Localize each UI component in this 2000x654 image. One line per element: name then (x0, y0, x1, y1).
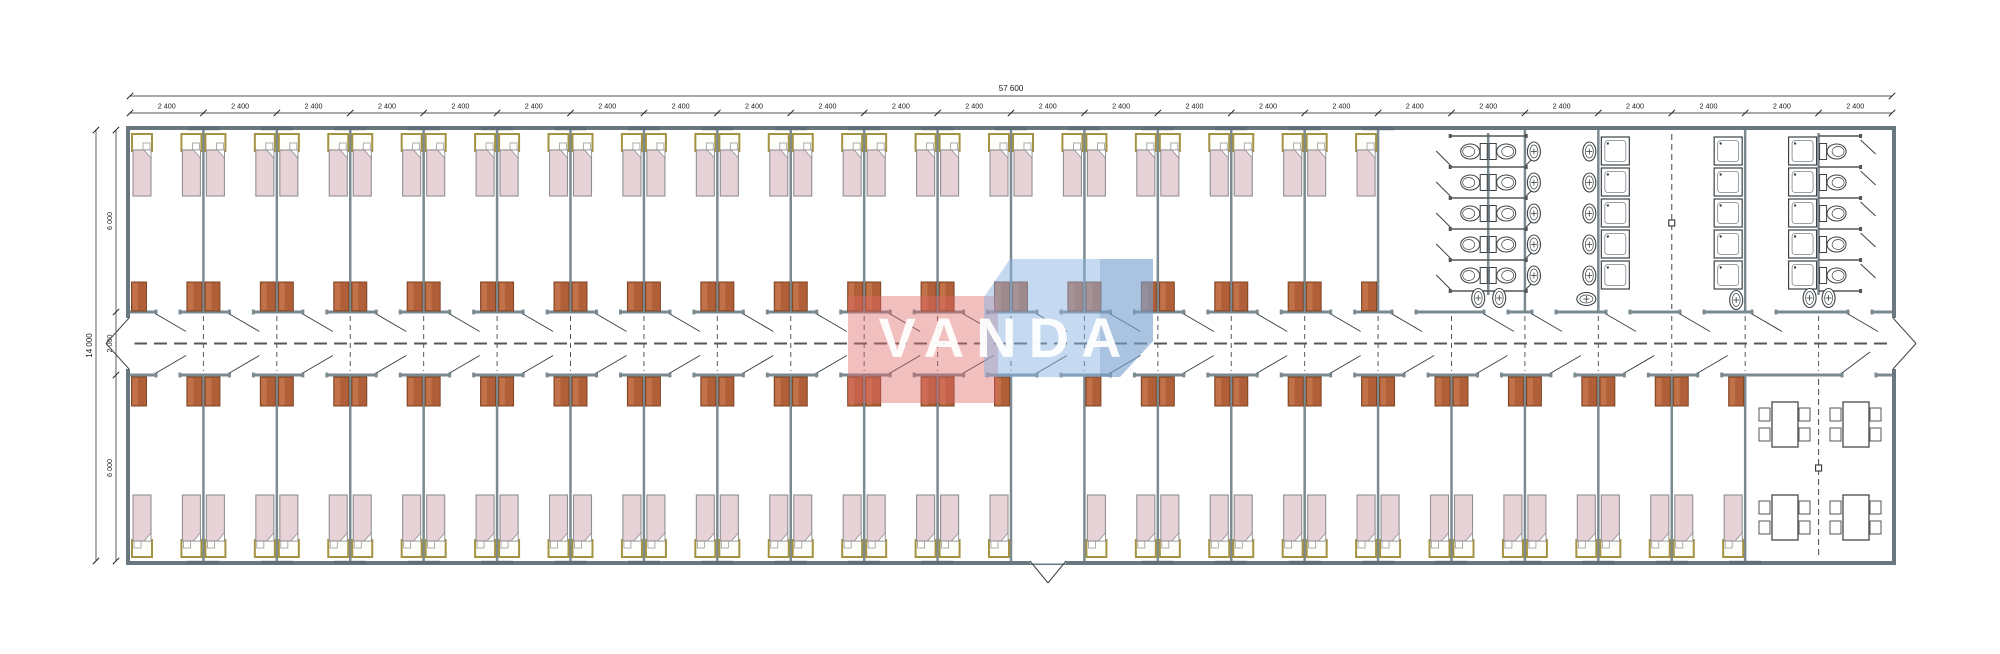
door-swing (815, 310, 847, 332)
bed (549, 134, 569, 196)
wardrobe (572, 282, 587, 311)
bed (1454, 495, 1474, 557)
door-swing (595, 310, 627, 332)
bed (328, 495, 348, 557)
wardrobe (1582, 377, 1597, 406)
svg-text:2 400: 2 400 (598, 102, 616, 111)
bed (1356, 495, 1376, 557)
washbasin (1730, 291, 1743, 310)
bed (622, 134, 642, 196)
chair (1830, 521, 1841, 534)
wardrobe (554, 282, 569, 311)
svg-text:2 400: 2 400 (451, 102, 469, 111)
wardrobe (554, 377, 569, 406)
svg-text:6 000: 6 000 (105, 212, 114, 230)
door-swing (1182, 356, 1214, 378)
washbasin (1583, 204, 1596, 223)
svg-text:2 400: 2 400 (525, 102, 543, 111)
svg-text:2 400: 2 400 (1846, 102, 1864, 111)
wardrobe (1453, 377, 1468, 406)
wardrobe (260, 377, 275, 406)
door-swing (228, 310, 259, 332)
toilet (1820, 237, 1847, 253)
door-swing (1182, 310, 1214, 332)
dining-table (1830, 402, 1881, 447)
wardrobe (187, 377, 202, 406)
bedroom (719, 134, 789, 332)
wardrobe (1508, 377, 1523, 406)
wardrobe (260, 282, 275, 311)
bed (1086, 134, 1106, 196)
bed (1503, 495, 1523, 557)
door-swing (1403, 356, 1435, 378)
bed (1576, 495, 1596, 557)
bedroom (132, 134, 202, 332)
chair (1799, 428, 1810, 441)
shower-tray (1789, 168, 1817, 196)
chair (1870, 501, 1881, 514)
bed (573, 134, 593, 196)
washbasin (1527, 235, 1540, 254)
door-swing (1476, 356, 1508, 378)
wardrobe (1233, 377, 1248, 406)
bed (1723, 495, 1743, 557)
dining-table (1759, 495, 1810, 540)
bed (866, 134, 886, 196)
wardrobe (132, 282, 147, 311)
wardrobe (499, 377, 514, 406)
bed (1380, 495, 1400, 557)
shower-tray (1714, 168, 1742, 196)
shower-tray (1601, 261, 1629, 289)
wardrobe (1600, 377, 1615, 406)
bed (1283, 134, 1303, 196)
toilet (1489, 175, 1516, 191)
shower-tray (1789, 137, 1817, 165)
wardrobe (1435, 377, 1450, 406)
door-swing (668, 310, 700, 332)
bedroom (425, 356, 495, 558)
bed (793, 495, 813, 557)
washbasin (1583, 235, 1596, 254)
bedroom (425, 134, 495, 332)
dining-room (1759, 352, 1881, 540)
chair (1759, 521, 1770, 534)
bedroom (719, 356, 789, 558)
bed (402, 495, 422, 557)
washbasin (1493, 289, 1506, 308)
bed (695, 134, 715, 196)
bed (719, 134, 739, 196)
bed (769, 495, 789, 557)
wardrobe (645, 377, 660, 406)
wardrobe (1159, 377, 1174, 406)
shower-tray (1714, 230, 1742, 258)
door-swing (1329, 310, 1361, 332)
door-swing (1696, 356, 1728, 378)
toilet (1461, 206, 1488, 222)
washroom (1527, 142, 1595, 306)
bedroom (132, 356, 202, 558)
bed (499, 134, 519, 196)
bed (769, 134, 789, 196)
sanitary-area (1391, 134, 1879, 332)
washbasin (1583, 266, 1596, 285)
bed (426, 495, 446, 557)
toilet (1820, 175, 1847, 191)
bed (916, 134, 936, 196)
chair (1870, 428, 1881, 441)
washbasin (1803, 289, 1816, 308)
toilet (1461, 175, 1488, 191)
bedroom (1086, 356, 1156, 558)
door-swing (522, 310, 554, 332)
bed (1527, 495, 1547, 557)
bed (352, 134, 372, 196)
chair (1799, 501, 1810, 514)
bedroom (1233, 134, 1303, 332)
svg-text:2 400: 2 400 (1553, 102, 1571, 111)
shower-tray (1601, 168, 1629, 196)
bed (255, 134, 275, 196)
bed (1307, 495, 1327, 557)
wardrobe (205, 377, 220, 406)
bed (1650, 495, 1670, 557)
wardrobe (407, 282, 422, 311)
wardrobe (1233, 282, 1248, 311)
wardrobe (425, 282, 440, 311)
bed (842, 495, 862, 557)
bed (279, 495, 299, 557)
washbasin (1527, 266, 1540, 285)
bed (719, 495, 739, 557)
bedroom (1526, 356, 1596, 558)
svg-text:2 400: 2 400 (1406, 102, 1424, 111)
door-swing (1329, 356, 1361, 378)
wardrobe (1380, 377, 1395, 406)
door-swing (301, 356, 333, 378)
bed (132, 495, 152, 557)
svg-text:14 000: 14 000 (85, 333, 94, 358)
washbasin (1822, 289, 1835, 308)
svg-text:2 400: 2 400 (231, 102, 249, 111)
bed (1160, 134, 1180, 196)
bed (499, 495, 519, 557)
bed (940, 134, 960, 196)
dimension-top: 57 6002 4002 4002 4002 4002 4002 4002 40… (127, 84, 1895, 116)
svg-text:2 400: 2 400 (1773, 102, 1791, 111)
wardrobe (627, 377, 642, 406)
bed (132, 134, 152, 196)
bed (940, 495, 960, 557)
toilet (1820, 268, 1847, 284)
bed (1160, 495, 1180, 557)
wardrobe (334, 282, 349, 311)
shower-wc-room (1789, 134, 1876, 308)
toilet (1461, 144, 1488, 160)
door-swing (375, 356, 407, 378)
bed (1307, 134, 1327, 196)
wardrobe (701, 282, 716, 311)
shower-tray (1601, 137, 1629, 165)
chair (1830, 408, 1841, 421)
bedroom (352, 134, 422, 332)
bed (989, 134, 1009, 196)
bed (842, 134, 862, 196)
bedroom (572, 134, 642, 332)
bed (646, 134, 666, 196)
bedroom (352, 356, 422, 558)
toilet (1489, 268, 1516, 284)
door-swing (375, 310, 407, 332)
shower-tray (1714, 261, 1742, 289)
bed (1086, 495, 1106, 557)
shower-tray (1789, 261, 1817, 289)
bed (1136, 495, 1156, 557)
wardrobe (792, 282, 807, 311)
dining-table (1759, 402, 1810, 447)
wardrobe (1159, 282, 1174, 311)
door-swing (448, 310, 480, 332)
wardrobe (1673, 377, 1688, 406)
bed (1233, 495, 1253, 557)
bed (916, 495, 936, 557)
wardrobe (1655, 377, 1670, 406)
door-swing (1623, 356, 1655, 378)
toilet (1820, 144, 1847, 160)
bed (1600, 495, 1620, 557)
bedroom (1600, 356, 1670, 558)
wardrobe (701, 377, 716, 406)
svg-text:2 400: 2 400 (1479, 102, 1497, 111)
svg-text:2 400: 2 400 (1186, 102, 1204, 111)
bedroom (1306, 356, 1376, 558)
wardrobe (407, 377, 422, 406)
shower-tray (1789, 230, 1817, 258)
dining-table (1830, 495, 1881, 540)
wardrobe (792, 377, 807, 406)
svg-text:2 400: 2 400 (1259, 102, 1277, 111)
wardrobe (425, 377, 440, 406)
door-swing (742, 310, 774, 332)
chair (1799, 521, 1810, 534)
bed (1209, 495, 1229, 557)
wardrobe (205, 282, 220, 311)
washbasin (1472, 289, 1485, 308)
wardrobe (1086, 377, 1101, 406)
chair (1870, 521, 1881, 534)
floor-plan: 57 6002 4002 4002 4002 4002 4002 4002 40… (0, 0, 2000, 654)
toilet (1489, 237, 1516, 253)
chair (1799, 408, 1810, 421)
bedroom (1380, 356, 1450, 558)
wardrobe (627, 282, 642, 311)
bed (328, 134, 348, 196)
toilet (1820, 206, 1847, 222)
washbasin (1527, 173, 1540, 192)
svg-text:2 400: 2 400 (1699, 102, 1717, 111)
shower-tray (1601, 199, 1629, 227)
bed (1209, 134, 1229, 196)
washbasin (1583, 173, 1596, 192)
wardrobe (132, 377, 147, 406)
bedroom (499, 356, 569, 558)
bed (279, 134, 299, 196)
wardrobe (481, 282, 496, 311)
top-bedrooms (132, 134, 1377, 332)
bedroom (499, 134, 569, 332)
bed (475, 134, 495, 196)
toilet (1461, 237, 1488, 253)
bedroom (572, 356, 642, 558)
shower-tray (1714, 137, 1742, 165)
door-swing (155, 356, 187, 378)
bed (695, 495, 715, 557)
bed (475, 495, 495, 557)
door-swing (228, 356, 259, 378)
bed (181, 134, 201, 196)
bedroom (205, 356, 275, 558)
wardrobe (1362, 282, 1377, 311)
wardrobe (1141, 377, 1156, 406)
toilet (1461, 268, 1488, 284)
svg-text:57 600: 57 600 (999, 84, 1024, 93)
bed (646, 495, 666, 557)
shower-tray (1789, 199, 1817, 227)
svg-text:2 400: 2 400 (965, 102, 983, 111)
door-swing (742, 356, 774, 378)
chair (1759, 501, 1770, 514)
bedroom (645, 356, 715, 558)
washbasin (1577, 293, 1596, 306)
wardrobe (572, 377, 587, 406)
bed (1430, 495, 1450, 557)
wardrobe (1215, 282, 1230, 311)
chair (1830, 428, 1841, 441)
bed (1283, 495, 1303, 557)
wardrobe (481, 377, 496, 406)
entrance-vestibule (1030, 356, 1067, 584)
bed (866, 495, 886, 557)
wardrobe (352, 377, 367, 406)
bedroom (1233, 356, 1303, 558)
bed (1233, 134, 1253, 196)
svg-text:2 400: 2 400 (892, 102, 910, 111)
wardrobe (774, 377, 789, 406)
wardrobe (334, 377, 349, 406)
bedroom (1306, 134, 1376, 332)
bed (426, 134, 446, 196)
wardrobe (1306, 377, 1321, 406)
bed (793, 134, 813, 196)
wardrobe (719, 377, 734, 406)
door-swing (155, 310, 187, 332)
bedroom (205, 134, 275, 332)
svg-text:2 400: 2 400 (158, 102, 176, 111)
chair (1830, 501, 1841, 514)
wardrobe (499, 282, 514, 311)
svg-text:2 400: 2 400 (1332, 102, 1350, 111)
dimension-left: 14 0006 0002 0006 000 (85, 127, 119, 564)
washbasin (1527, 142, 1540, 161)
wardrobe (1306, 282, 1321, 311)
wardrobe (1288, 377, 1303, 406)
wardrobe (719, 282, 734, 311)
wardrobe (352, 282, 367, 311)
wardrobe (278, 377, 293, 406)
svg-text:2 400: 2 400 (672, 102, 690, 111)
chair (1759, 428, 1770, 441)
wardrobe (645, 282, 660, 311)
toilet (1489, 144, 1516, 160)
wardrobe (1215, 377, 1230, 406)
watermark-text: VANDA (879, 306, 1134, 369)
door-swing (595, 356, 627, 378)
bedroom (1453, 356, 1523, 558)
bed (352, 495, 372, 557)
bed (205, 495, 225, 557)
bedroom (278, 356, 348, 558)
washbasin (1583, 142, 1596, 161)
bed (622, 495, 642, 557)
bedroom (1159, 134, 1229, 332)
bed (1356, 134, 1376, 196)
shower-tray (1714, 199, 1742, 227)
door-swing (815, 356, 847, 378)
door-swing (448, 356, 480, 378)
door-swing (522, 356, 554, 378)
bedroom (1159, 356, 1229, 558)
wardrobe (187, 282, 202, 311)
wardrobe (1288, 282, 1303, 311)
bed (573, 495, 593, 557)
bed (402, 134, 422, 196)
door-swing (668, 356, 700, 378)
door-swing (1549, 356, 1581, 378)
bed (1013, 134, 1033, 196)
bed (181, 495, 201, 557)
wardrobe (1526, 377, 1541, 406)
door-swing (301, 310, 333, 332)
bed (1674, 495, 1694, 557)
door-swing (1256, 356, 1288, 378)
shower-tray (1601, 230, 1629, 258)
bed (989, 495, 1009, 557)
chair (1759, 408, 1770, 421)
svg-text:2 400: 2 400 (1626, 102, 1644, 111)
washbasin (1527, 204, 1540, 223)
svg-text:2 400: 2 400 (378, 102, 396, 111)
wardrobe (774, 282, 789, 311)
door-swing (1256, 310, 1288, 332)
svg-text:2 400: 2 400 (1039, 102, 1057, 111)
bed (1136, 134, 1156, 196)
wardrobe (1362, 377, 1377, 406)
bed (255, 495, 275, 557)
bedroom (645, 134, 715, 332)
bed (205, 134, 225, 196)
toilet (1489, 206, 1516, 222)
svg-text:6 000: 6 000 (105, 459, 114, 477)
bed (1062, 134, 1082, 196)
bedroom (1673, 356, 1743, 558)
svg-text:2 400: 2 400 (305, 102, 323, 111)
svg-text:2 400: 2 400 (745, 102, 763, 111)
wardrobe (1729, 377, 1744, 406)
bed (549, 495, 569, 557)
floor-plan-canvas: 57 6002 4002 4002 4002 4002 4002 4002 40… (0, 0, 2000, 654)
bedroom (278, 134, 348, 332)
